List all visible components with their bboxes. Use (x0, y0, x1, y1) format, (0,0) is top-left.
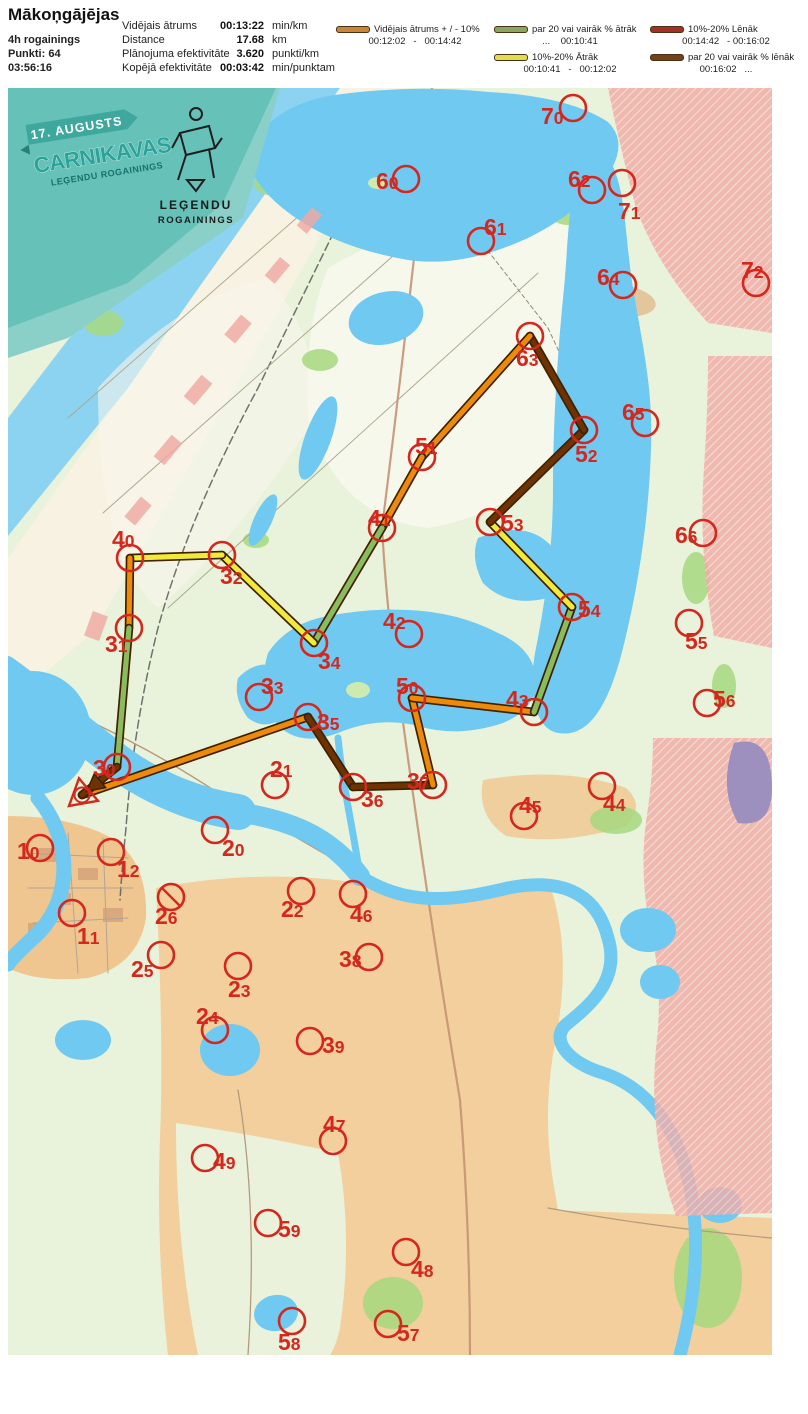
stat-value: 00:03:42 (212, 62, 264, 74)
route-map: 1011122021222324252630313233343536373839… (8, 88, 772, 1355)
legend-item-avg: Vidējais ātrums + / - 10% 00:12:02 - 00:… (336, 24, 494, 47)
stat-value: 3.620 (212, 48, 264, 60)
legend-line-swatch (494, 26, 528, 33)
route-segment-40-31 (129, 558, 130, 628)
legend-line-swatch (336, 26, 370, 33)
legend-item-fast20: par 20 vai vairāk % ātrāk ... 00:10:41 (494, 24, 646, 47)
legend-item-slow20: par 20 vai vairāk % lēnāk 00:16:02 ... (650, 52, 802, 75)
page-title: Mākoņgājējas (8, 5, 120, 25)
legend-line-swatch (650, 26, 684, 33)
legend-line-swatch (494, 54, 528, 61)
stat-label: Vidējais ātrums (122, 20, 197, 32)
legend-column-1: Vidējais ātrums + / - 10% 00:12:02 - 00:… (336, 24, 494, 52)
stat-label: Kopējā efektivitāte (122, 62, 212, 74)
results-header: Mākoņgājējas 4h rogainings Punkti: 64 03… (0, 0, 808, 88)
legend-item-slow10: 10%-20% Lēnāk 00:14:42 - 00:16:02 (650, 24, 802, 47)
points-total: Punkti: 64 (8, 48, 61, 60)
legend-column-2: par 20 vai vairāk % ātrāk ... 00:10:41 1… (494, 24, 646, 80)
stat-unit: punkti/km (272, 48, 319, 60)
stat-value: 17.68 (212, 34, 264, 46)
event-format: 4h rogainings (8, 34, 80, 46)
legend-column-3: 10%-20% Lēnāk 00:14:42 - 00:16:02 par 20… (650, 24, 802, 80)
legend-item-fast10: 10%-20% Ātrāk 00:10:41 - 00:12:02 (494, 52, 646, 75)
logo-text-1: LEĢENDU (160, 198, 233, 212)
stat-unit: min/km (272, 20, 307, 32)
total-time: 03:56:16 (8, 62, 52, 74)
legend-line-swatch (650, 54, 684, 61)
stat-label: Distance (122, 34, 165, 46)
stat-unit: min/punktam (272, 62, 335, 74)
stat-unit: km (272, 34, 287, 46)
stat-value: 00:13:22 (212, 20, 264, 32)
logo-text-2: ROGAININGS (158, 215, 234, 226)
